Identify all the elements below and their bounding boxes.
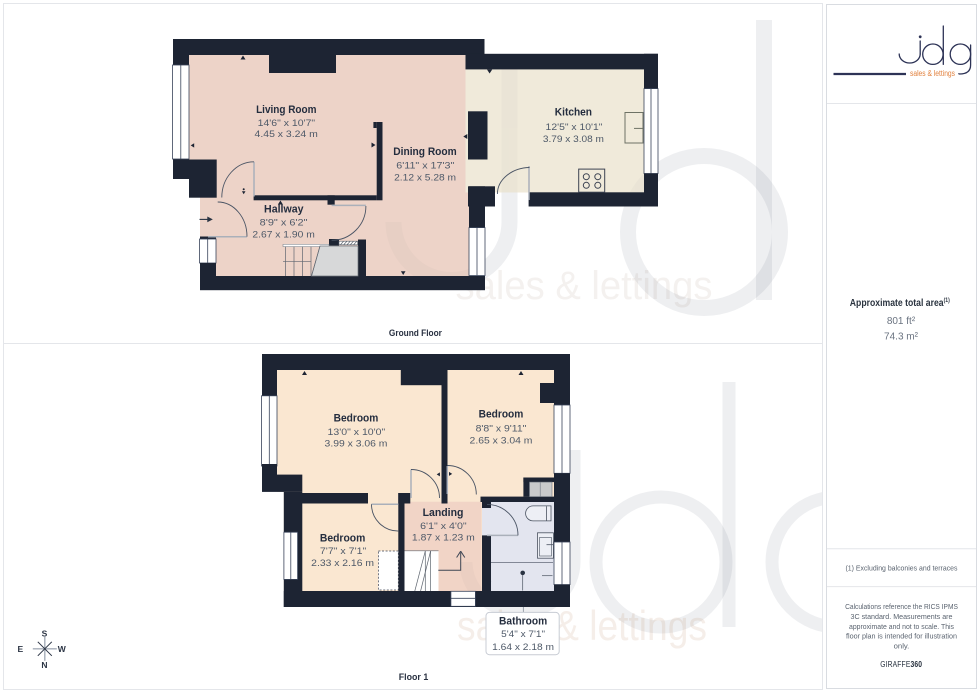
svg-text:74.3 m²: 74.3 m² [884,332,919,343]
svg-text:801 ft²: 801 ft² [887,316,916,327]
svg-text:14'6" x 10'7": 14'6" x 10'7" [258,118,316,128]
svg-text:GIRAFFE360: GIRAFFE360 [880,659,922,669]
svg-text:Landing: Landing [423,507,464,519]
svg-text:1.64 x 2.18 m: 1.64 x 2.18 m [492,642,554,652]
svg-text:2.33 x 2.16 m: 2.33 x 2.16 m [311,558,374,568]
svg-text:only.: only. [894,642,910,651]
svg-text:Floor 1: Floor 1 [399,672,429,682]
svg-text:5'4" x 7'1": 5'4" x 7'1" [501,629,545,639]
svg-text:2.12 x 5.28 m: 2.12 x 5.28 m [394,172,456,182]
svg-text:2.65 x 3.04 m: 2.65 x 3.04 m [470,435,533,445]
svg-text:4.45 x 3.24 m: 4.45 x 3.24 m [255,129,319,139]
svg-text:13'0" x 10'0": 13'0" x 10'0" [328,427,386,437]
svg-text:W: W [58,644,67,654]
svg-text:floor plan is intended for ill: floor plan is intended for illustration [846,632,957,641]
svg-text:Hallway: Hallway [264,204,304,216]
svg-text:Kitchen: Kitchen [555,107,592,119]
svg-text:6'11" x 17'3": 6'11" x 17'3" [396,161,454,171]
svg-text:3.79 x 3.08 m: 3.79 x 3.08 m [543,134,604,144]
svg-text:12'5" x 10'1": 12'5" x 10'1" [546,122,603,132]
svg-text:Dining Room: Dining Room [393,146,456,158]
svg-text:1.87 x 1.23 m: 1.87 x 1.23 m [412,533,475,543]
svg-text:E: E [17,644,23,654]
svg-text:Bedroom: Bedroom [479,408,524,420]
svg-text:approximate and not to scale.: approximate and not to scale. This [849,622,954,631]
svg-text:N: N [41,660,47,670]
svg-text:3C standard. Measurements are: 3C standard. Measurements are [851,612,953,621]
svg-text:6'1" x 4'0": 6'1" x 4'0" [420,521,467,531]
svg-text:8'8" x 9'11": 8'8" x 9'11" [476,424,527,434]
svg-text:3.99 x 3.06 m: 3.99 x 3.06 m [325,439,388,449]
svg-text:Bathroom: Bathroom [499,615,547,627]
svg-text:Bedroom: Bedroom [334,413,379,425]
svg-text:Calculations reference the RIC: Calculations reference the RICS IPMS [845,602,958,611]
svg-text:Approximate total area(1): Approximate total area(1) [850,298,950,309]
svg-text:S: S [42,629,48,639]
svg-text:(1) Excluding balconies and te: (1) Excluding balconies and terraces [846,564,958,573]
svg-text:Bedroom: Bedroom [320,532,365,544]
svg-text:2.67 x 1.90 m: 2.67 x 1.90 m [252,230,315,240]
svg-text:Ground Floor: Ground Floor [389,328,442,338]
svg-text:7'7" x 7'1": 7'7" x 7'1" [320,546,366,556]
svg-text:Living Room: Living Room [256,104,316,116]
svg-text:8'9" x 6'2": 8'9" x 6'2" [260,218,308,228]
svg-text:sales & lettings: sales & lettings [910,69,955,78]
